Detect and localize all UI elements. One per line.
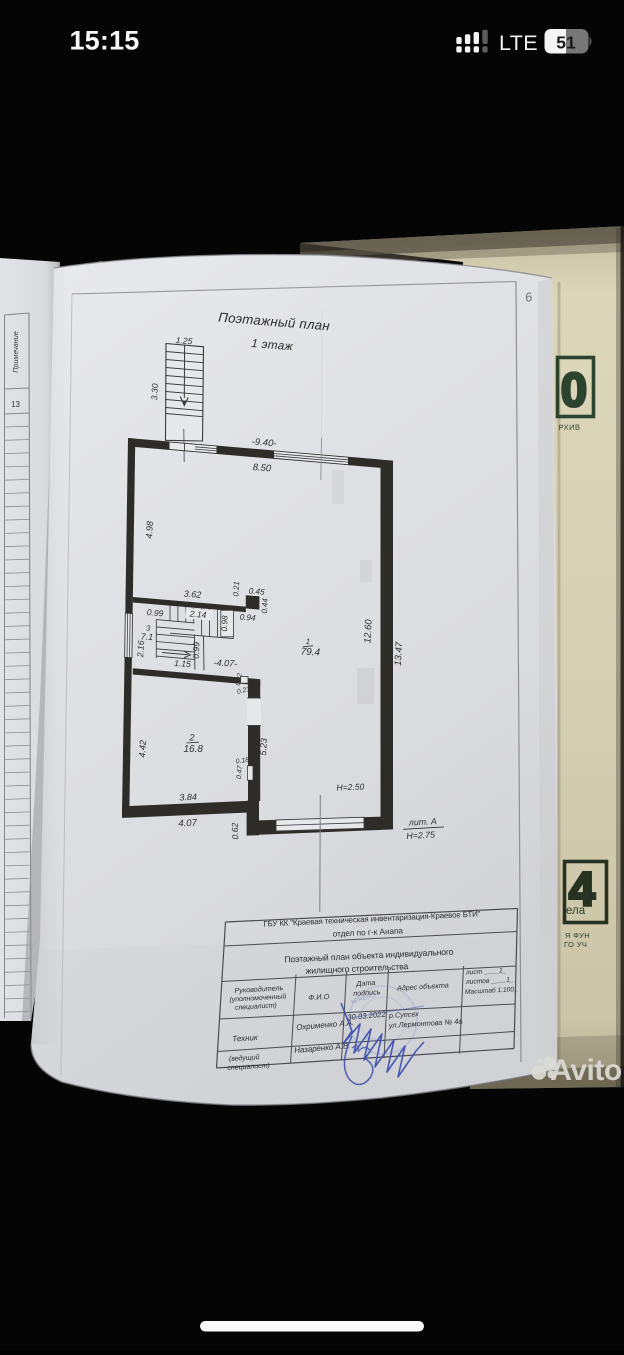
svg-text:лит. А: лит. А [408, 816, 437, 828]
svg-text:79.4: 79.4 [300, 647, 320, 659]
svg-text:0.98: 0.98 [220, 615, 230, 632]
svg-text:0.62: 0.62 [230, 822, 241, 839]
svg-text:5.23: 5.23 [258, 738, 269, 756]
svg-text:0.99: 0.99 [191, 642, 202, 659]
svg-text:-4.07-: -4.07- [213, 658, 237, 669]
svg-text:15:15: 15:15 [69, 26, 139, 56]
svg-text:13: 13 [11, 400, 20, 409]
svg-text:1: 1 [305, 637, 310, 646]
svg-text:0.45: 0.45 [248, 587, 265, 597]
svg-text:ГО УЧ: ГО УЧ [564, 940, 587, 949]
svg-text:Н=2.50: Н=2.50 [336, 782, 365, 793]
svg-text:-9.40-: -9.40- [251, 437, 277, 450]
svg-text:Avito: Avito [550, 1054, 622, 1087]
svg-text:3.62: 3.62 [183, 589, 201, 600]
svg-text:Примечание: Примечание [11, 331, 20, 372]
svg-text:0.21: 0.21 [231, 581, 241, 597]
svg-text:0.99: 0.99 [146, 607, 164, 618]
svg-text:4.42: 4.42 [137, 740, 148, 758]
svg-text:Ф.И.О: Ф.И.О [308, 992, 330, 1002]
svg-text:1.15: 1.15 [174, 658, 191, 669]
svg-text:3.84: 3.84 [179, 792, 197, 803]
svg-text:1.25: 1.25 [175, 335, 193, 346]
svg-text:Н=2.75: Н=2.75 [406, 830, 435, 841]
svg-text:13.47: 13.47 [393, 641, 405, 666]
svg-text:РХИВ: РХИВ [558, 423, 580, 432]
svg-text:8.50: 8.50 [252, 462, 272, 475]
svg-text:2.16: 2.16 [135, 640, 146, 658]
svg-text:2.14: 2.14 [188, 608, 207, 619]
svg-text:0.44: 0.44 [260, 597, 270, 613]
svg-text:3.30: 3.30 [149, 383, 160, 400]
svg-text:Я ФУН: Я ФУН [565, 931, 590, 940]
svg-text:16.8: 16.8 [184, 744, 204, 755]
svg-text:Техник: Техник [232, 1033, 259, 1044]
svg-text:0.47: 0.47 [236, 764, 244, 779]
svg-text:12.60: 12.60 [362, 618, 374, 643]
svg-text:0.94: 0.94 [239, 613, 256, 623]
svg-text:51: 51 [556, 33, 576, 53]
svg-text:4.98: 4.98 [144, 521, 155, 539]
svg-text:ела: ела [566, 905, 586, 917]
svg-text:0: 0 [561, 363, 587, 416]
svg-text:4.07: 4.07 [178, 818, 198, 830]
svg-text:LTE: LTE [499, 31, 538, 55]
svg-text:Дата: Дата [355, 978, 375, 988]
svg-text:2: 2 [189, 733, 195, 743]
